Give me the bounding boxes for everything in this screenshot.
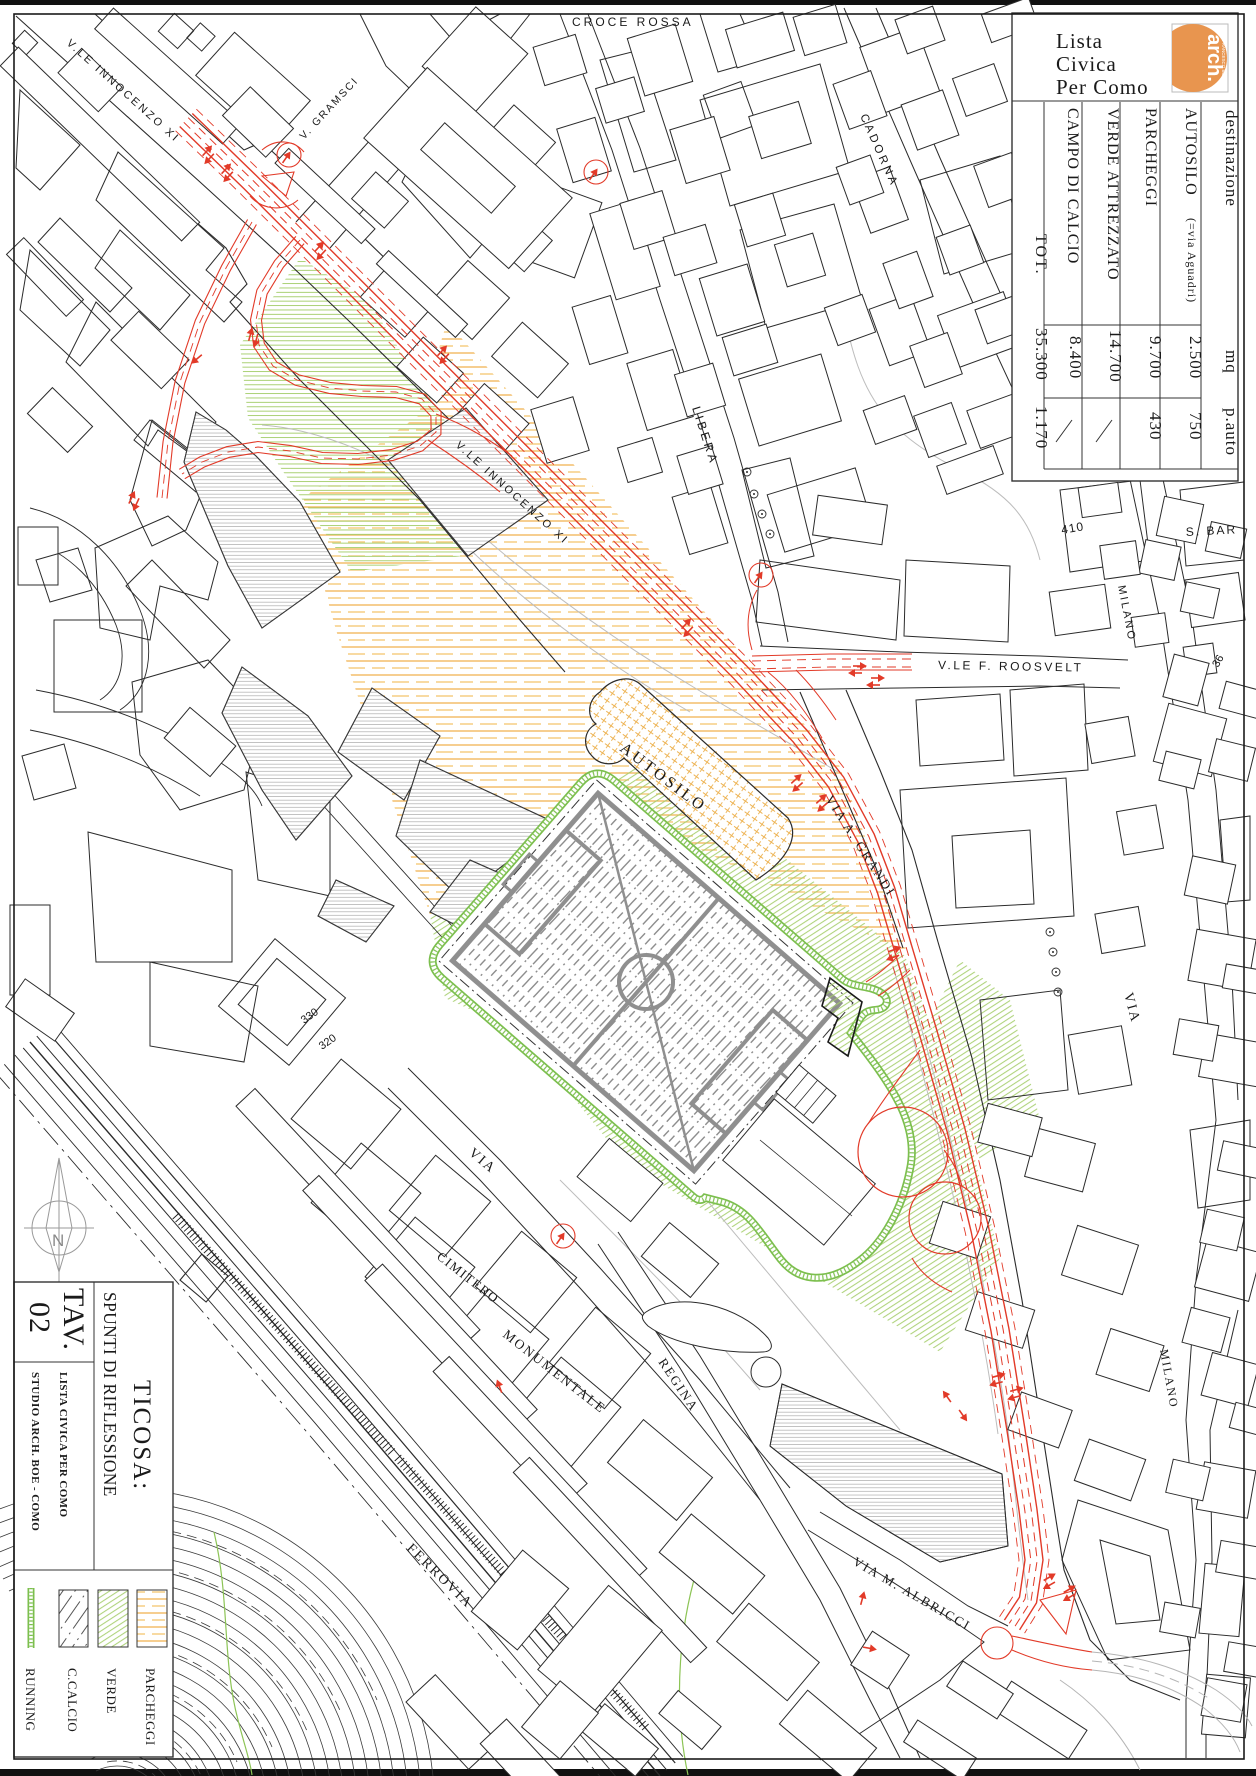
svg-text:TICOSA:: TICOSA: xyxy=(128,1380,155,1491)
svg-text:AUTOSILO: AUTOSILO xyxy=(1182,108,1199,196)
svg-text:35.300: 35.300 xyxy=(1032,328,1051,381)
svg-text:STUDIO ARCH. BOE - COMO: STUDIO ARCH. BOE - COMO xyxy=(29,1372,41,1531)
svg-text:PARCHEGGI: PARCHEGGI xyxy=(1142,108,1159,207)
svg-text:9.700: 9.700 xyxy=(1146,336,1165,379)
svg-text:TOT.: TOT. xyxy=(1032,234,1049,276)
svg-text:Per Como: Per Como xyxy=(1056,75,1149,99)
svg-text:VERDE: VERDE xyxy=(104,1668,119,1714)
svg-text:N: N xyxy=(52,1231,64,1250)
svg-text:destinazione: destinazione xyxy=(1222,110,1241,207)
svg-text:mq: mq xyxy=(1222,350,1241,374)
svg-text:S. BAR: S. BAR xyxy=(1185,522,1237,539)
svg-text:RUNNING: RUNNING xyxy=(23,1668,38,1731)
svg-text:LISTA CIVICA PER COMO: LISTA CIVICA PER COMO xyxy=(57,1372,69,1517)
svg-text:Civica: Civica xyxy=(1056,52,1117,76)
svg-text:TAV.: TAV. xyxy=(57,1288,90,1351)
svg-text:750: 750 xyxy=(1186,412,1205,441)
svg-text:02: 02 xyxy=(23,1302,56,1334)
svg-text:8.400: 8.400 xyxy=(1066,336,1085,379)
svg-text:430: 430 xyxy=(1146,412,1165,441)
svg-text:CAMPO DI CALCIO: CAMPO DI CALCIO xyxy=(1064,108,1081,264)
svg-text:p.auto: p.auto xyxy=(1222,408,1241,456)
svg-text:V.LE F. ROOSVELT: V.LE F. ROOSVELT xyxy=(938,658,1084,675)
svg-text:2.500: 2.500 xyxy=(1186,336,1205,379)
svg-text:FRANCESCO BOE: FRANCESCO BOE xyxy=(1221,40,1226,79)
svg-text:14.700: 14.700 xyxy=(1106,330,1125,383)
svg-text:C.CALCIO: C.CALCIO xyxy=(65,1668,80,1732)
svg-text:CROCE ROSSA: CROCE ROSSA xyxy=(572,15,694,29)
svg-text:Lista: Lista xyxy=(1056,29,1103,53)
svg-text:VERDE ATTREZZATO: VERDE ATTREZZATO xyxy=(1104,108,1121,281)
svg-text:SPUNTI DI RIFLESSIONE: SPUNTI DI RIFLESSIONE xyxy=(100,1292,120,1497)
svg-text:PARCHEGGI: PARCHEGGI xyxy=(143,1668,158,1746)
svg-text:(=via Aguadri): (=via Aguadri) xyxy=(1185,218,1199,303)
svg-text:1.170: 1.170 xyxy=(1032,406,1051,449)
